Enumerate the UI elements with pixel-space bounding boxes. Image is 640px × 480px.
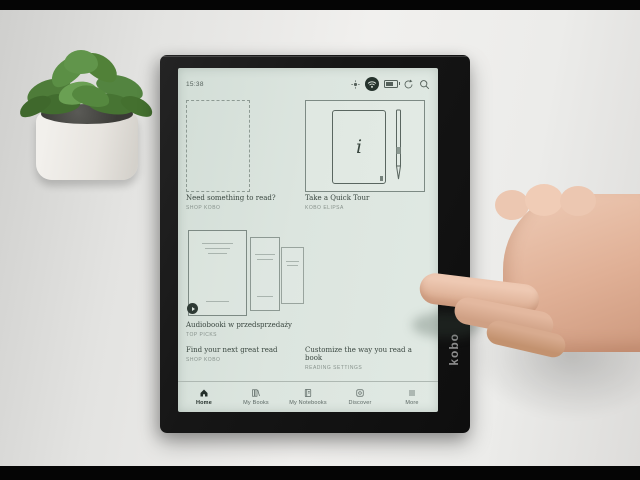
sync-icon[interactable] bbox=[403, 79, 414, 90]
card-subtitle: KOBO ELIPSA bbox=[305, 205, 423, 211]
nav-item-my-notebooks[interactable]: My Notebooks bbox=[282, 382, 334, 412]
search-icon[interactable] bbox=[419, 79, 430, 90]
device-screen: 15:38 bbox=[178, 68, 438, 412]
empty-book-placeholder[interactable] bbox=[186, 100, 250, 192]
find-read-link[interactable]: Find your next great read SHOP KOBO bbox=[186, 346, 304, 363]
link-title: Customize the way you read a book bbox=[305, 346, 423, 362]
card-title: Need something to read? bbox=[186, 194, 304, 202]
home-icon bbox=[199, 388, 209, 398]
clock-text: 15:38 bbox=[186, 81, 204, 88]
book-cover bbox=[250, 237, 280, 311]
link-subtitle: READING SETTINGS bbox=[305, 365, 423, 371]
letterbox-top bbox=[0, 0, 640, 10]
user-hand bbox=[415, 182, 640, 377]
nav-label: My Books bbox=[243, 400, 269, 406]
scene: kobo 15:38 bbox=[0, 0, 640, 480]
more-icon bbox=[407, 388, 417, 398]
quick-tour-caption[interactable]: Take a Quick Tour KOBO ELIPSA bbox=[305, 194, 423, 211]
card-subtitle: TOP PICKS bbox=[186, 332, 304, 338]
book-cover bbox=[281, 247, 304, 304]
nav-label: Discover bbox=[349, 400, 372, 406]
wifi-icon[interactable] bbox=[365, 77, 379, 91]
potted-plant bbox=[8, 42, 163, 187]
battery-icon bbox=[384, 80, 398, 88]
card-title: Audiobooki w przedsprzedaży bbox=[186, 321, 304, 329]
info-glyph: i bbox=[356, 136, 362, 158]
status-bar: 15:38 bbox=[186, 76, 430, 92]
nav-item-home[interactable]: Home bbox=[178, 382, 230, 412]
audiobooks-caption[interactable]: Audiobooki w przedsprzedaży TOP PICKS bbox=[186, 321, 304, 338]
book-cover bbox=[188, 230, 247, 316]
notebook-icon bbox=[303, 388, 313, 398]
customize-reading-link[interactable]: Customize the way you read a book READIN… bbox=[305, 346, 423, 371]
letterbox-bottom bbox=[0, 466, 640, 480]
nav-label: More bbox=[405, 400, 418, 406]
stylus-illustration bbox=[394, 109, 403, 183]
brightness-icon bbox=[351, 80, 360, 89]
link-subtitle: SHOP KOBO bbox=[186, 357, 304, 363]
nav-label: My Notebooks bbox=[289, 400, 327, 406]
card-subtitle: SHOP KOBO bbox=[186, 205, 304, 211]
books-icon bbox=[251, 388, 261, 398]
audiobook-covers-illustration[interactable] bbox=[186, 228, 304, 318]
nav-label: Home bbox=[196, 400, 212, 406]
shop-kobo-card[interactable]: Need something to read? SHOP KOBO bbox=[186, 194, 304, 211]
ereader-illustration: i bbox=[332, 110, 386, 184]
link-title: Find your next great read bbox=[186, 346, 304, 354]
bottom-nav-bar: Home My Books bbox=[178, 381, 438, 412]
nav-item-more[interactable]: More bbox=[386, 382, 438, 412]
nav-item-discover[interactable]: Discover bbox=[334, 382, 386, 412]
nav-item-my-books[interactable]: My Books bbox=[230, 382, 282, 412]
quick-tour-card[interactable]: i bbox=[305, 100, 425, 192]
audiobook-play-icon bbox=[187, 303, 198, 314]
discover-icon bbox=[355, 388, 365, 398]
card-title: Take a Quick Tour bbox=[305, 194, 423, 202]
